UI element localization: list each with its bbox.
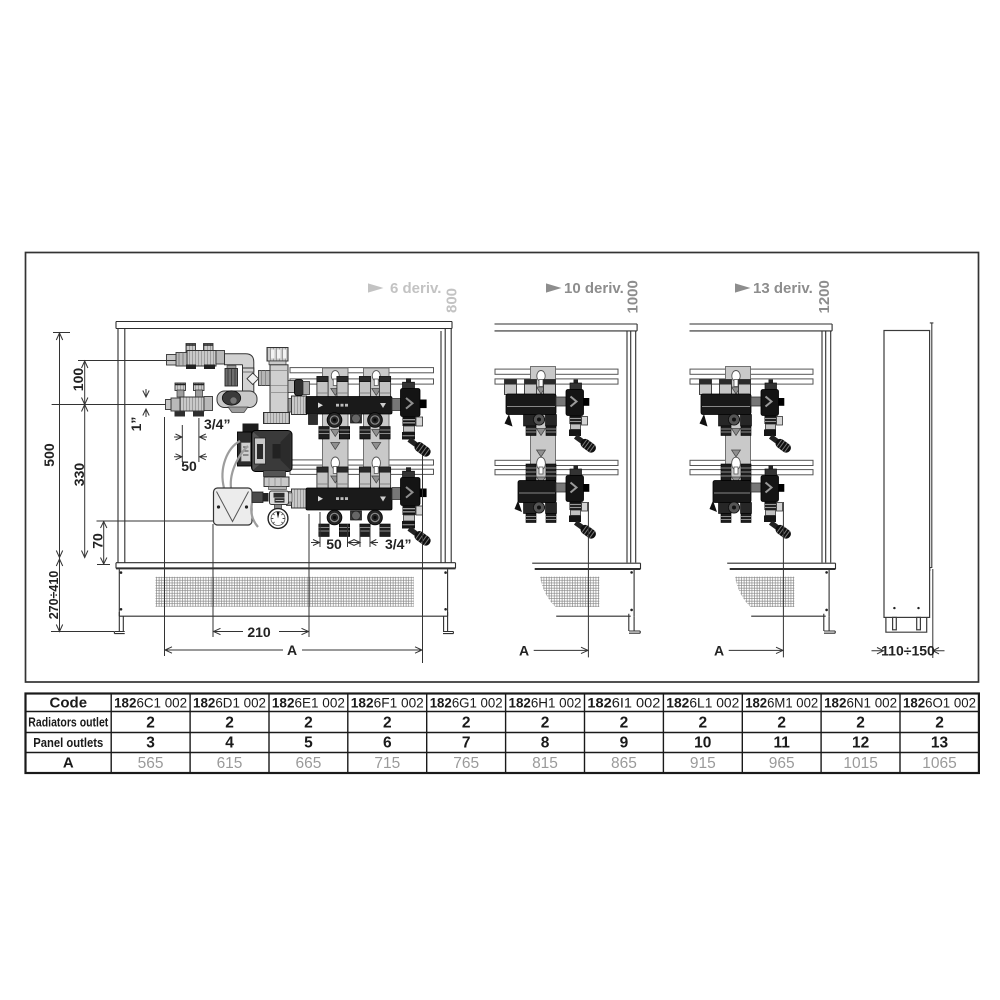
svg-text:A: A: [63, 755, 74, 772]
svg-text:3/4”: 3/4”: [385, 536, 411, 552]
svg-text:13: 13: [931, 735, 949, 752]
svg-text:665: 665: [295, 755, 321, 772]
svg-text:6: 6: [383, 735, 392, 752]
svg-text:2: 2: [304, 715, 313, 732]
svg-text:50: 50: [326, 536, 342, 552]
svg-text:70: 70: [90, 533, 106, 549]
svg-text:1826L1 002: 1826L1 002: [666, 695, 739, 711]
svg-text:A: A: [287, 642, 297, 658]
svg-text:1015: 1015: [843, 755, 877, 772]
svg-text:500: 500: [41, 443, 57, 467]
svg-text:615: 615: [217, 755, 243, 772]
svg-text:2: 2: [462, 715, 471, 732]
svg-text:2: 2: [856, 715, 865, 732]
svg-text:1065: 1065: [922, 755, 956, 772]
svg-text:2: 2: [225, 715, 234, 732]
svg-text:7: 7: [462, 735, 471, 752]
svg-text:1826E1 002: 1826E1 002: [272, 695, 345, 711]
svg-text:2: 2: [698, 715, 707, 732]
svg-text:565: 565: [138, 755, 164, 772]
svg-text:1000: 1000: [625, 280, 642, 313]
svg-text:1200: 1200: [816, 280, 833, 313]
svg-text:330: 330: [71, 463, 87, 487]
svg-text:2: 2: [383, 715, 392, 732]
svg-text:8: 8: [541, 735, 550, 752]
svg-text:50: 50: [181, 458, 197, 474]
svg-text:1826G1 002: 1826G1 002: [430, 695, 503, 711]
svg-text:100: 100: [70, 368, 86, 392]
svg-text:1826N1 002: 1826N1 002: [824, 695, 897, 711]
svg-text:Radiators outlet: Radiators outlet: [28, 716, 109, 730]
svg-text:815: 815: [532, 755, 558, 772]
svg-text:Code: Code: [50, 695, 88, 712]
svg-text:965: 965: [769, 755, 795, 772]
svg-text:1826I1 002: 1826I1 002: [587, 695, 660, 711]
svg-text:800: 800: [444, 288, 461, 313]
svg-text:A: A: [519, 642, 529, 658]
svg-text:715: 715: [374, 755, 400, 772]
svg-text:3/4”: 3/4”: [204, 416, 230, 432]
svg-text:3: 3: [146, 735, 155, 752]
svg-text:1826C1 002: 1826C1 002: [114, 695, 187, 711]
svg-text:2: 2: [541, 715, 550, 732]
svg-text:1826F1 002: 1826F1 002: [351, 695, 424, 711]
svg-text:915: 915: [690, 755, 716, 772]
svg-text:9: 9: [620, 735, 629, 752]
svg-text:6 deriv.: 6 deriv.: [390, 280, 441, 297]
svg-text:1826H1 002: 1826H1 002: [509, 695, 582, 711]
svg-text:865: 865: [611, 755, 637, 772]
svg-text:1826D1 002: 1826D1 002: [193, 695, 266, 711]
svg-text:210: 210: [247, 624, 271, 640]
svg-text:Panel outlets: Panel outlets: [33, 735, 103, 750]
svg-text:2: 2: [777, 715, 786, 732]
svg-text:2: 2: [146, 715, 155, 732]
svg-text:A: A: [714, 642, 724, 658]
svg-text:10 deriv.: 10 deriv.: [564, 280, 624, 297]
svg-text:12: 12: [852, 735, 869, 752]
svg-text:11: 11: [774, 735, 791, 752]
svg-text:2: 2: [935, 715, 944, 732]
svg-text:1826O1 002: 1826O1 002: [903, 695, 976, 711]
svg-text:765: 765: [453, 755, 479, 772]
svg-text:5: 5: [304, 735, 313, 752]
svg-text:13 deriv.: 13 deriv.: [753, 280, 813, 297]
svg-text:4: 4: [225, 735, 234, 752]
svg-text:1826M1 002: 1826M1 002: [745, 695, 818, 711]
svg-text:1”: 1”: [128, 417, 144, 432]
svg-text:110÷150: 110÷150: [881, 643, 935, 659]
svg-text:10: 10: [694, 735, 711, 752]
svg-text:2: 2: [620, 715, 629, 732]
svg-text:270÷410: 270÷410: [47, 571, 61, 620]
